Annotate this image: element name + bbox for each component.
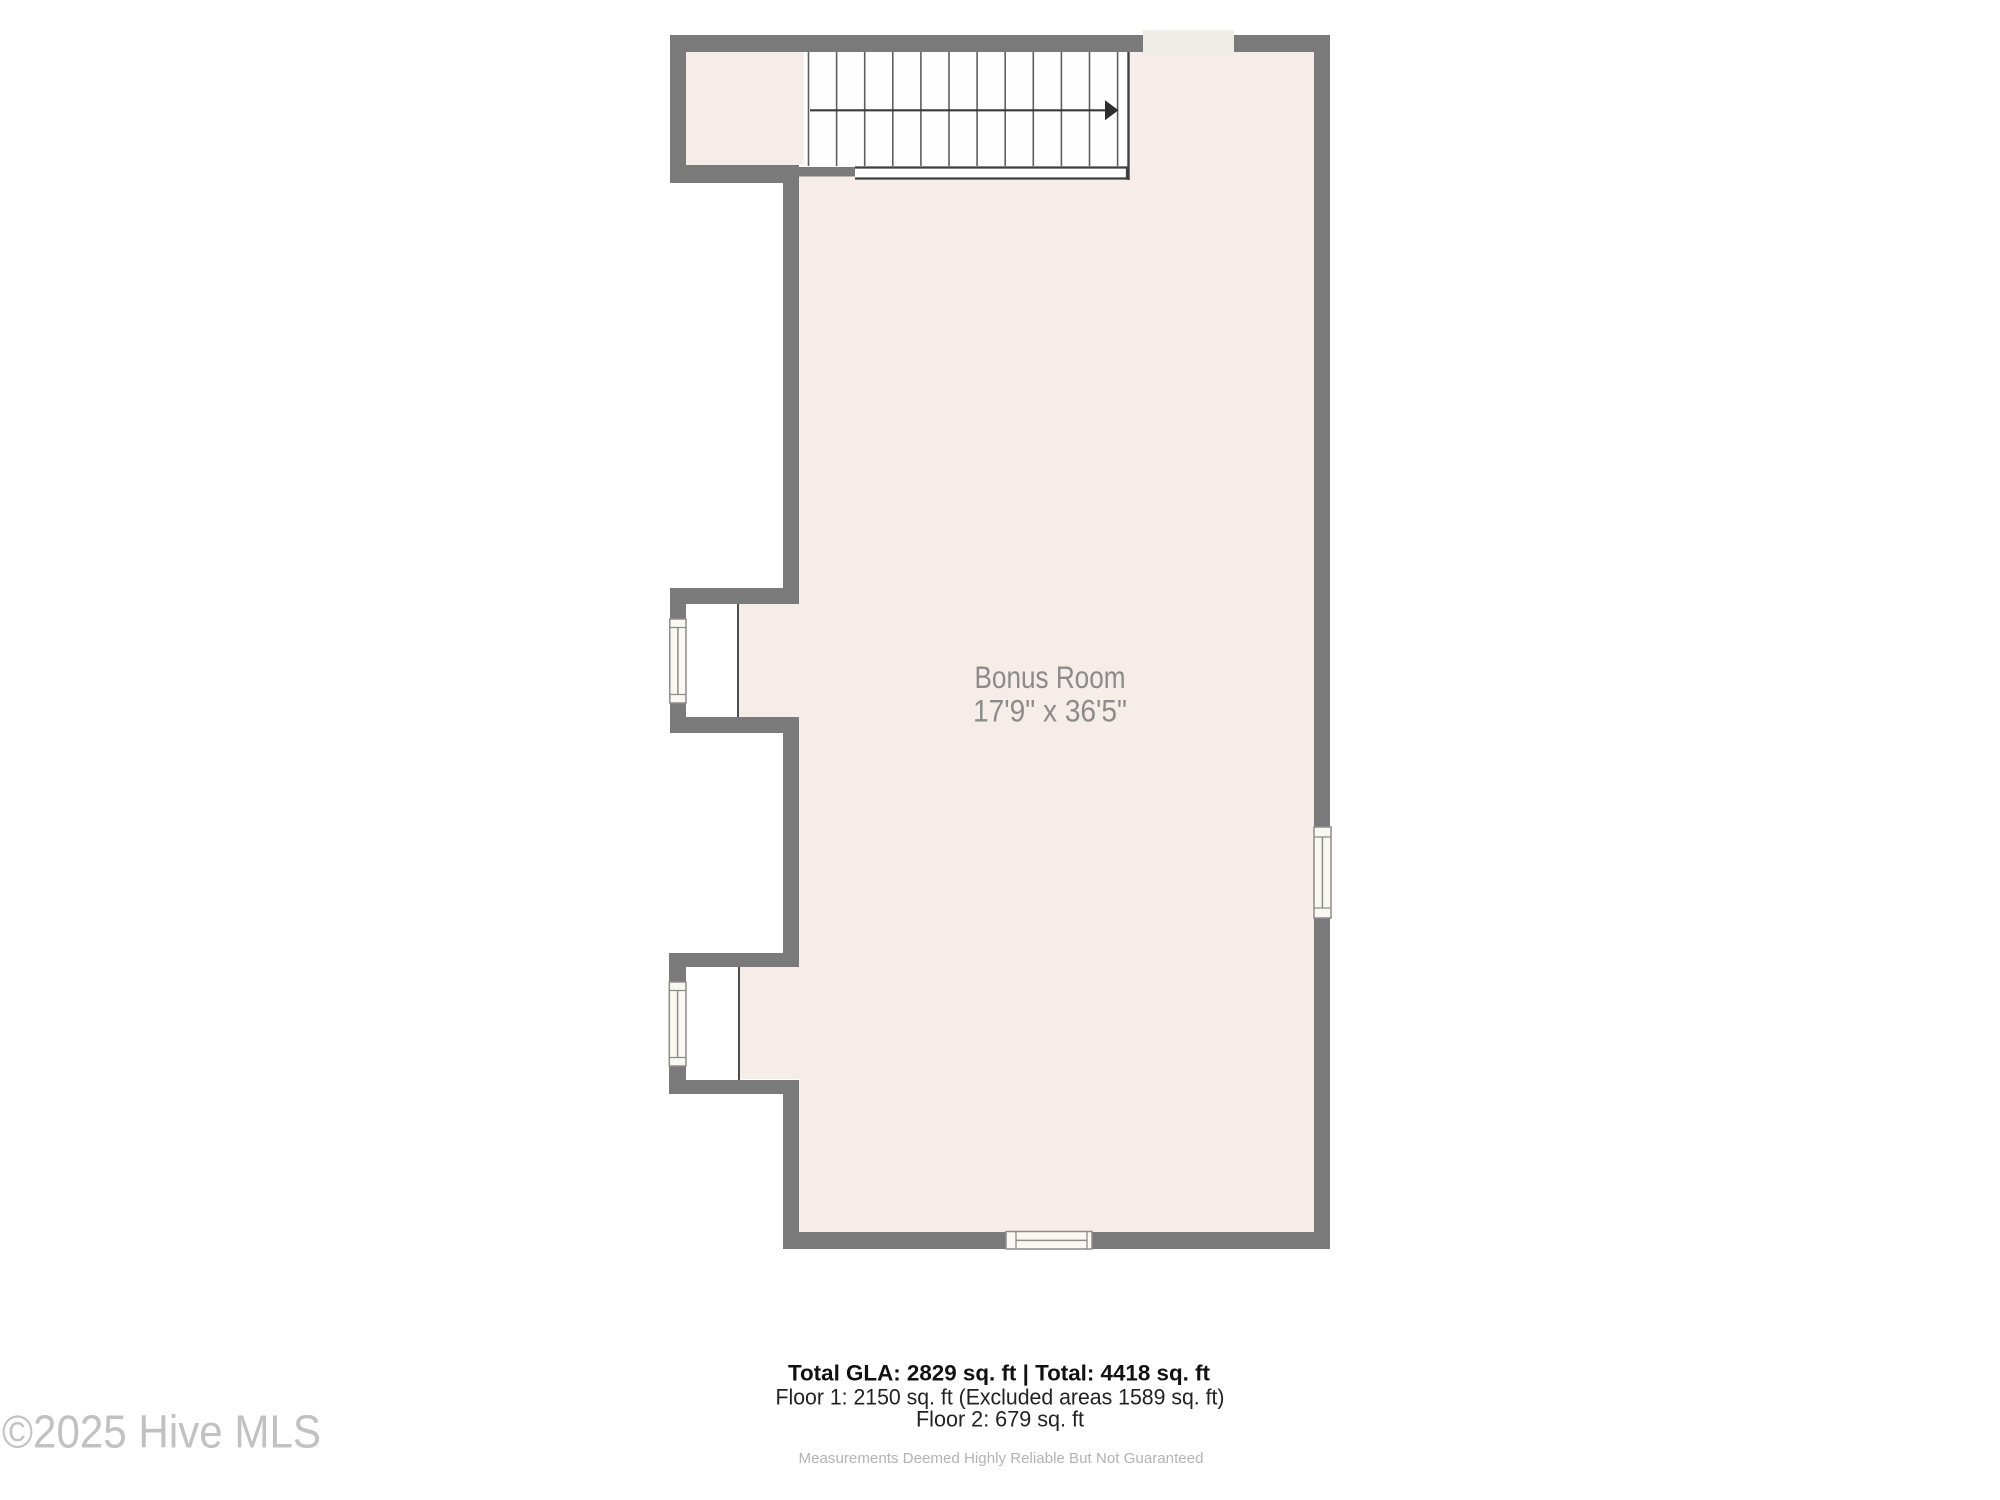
svg-text:17'9" x 36'5": 17'9" x 36'5" (973, 693, 1127, 729)
svg-text:Floor 2: 679 sq. ft: Floor 2: 679 sq. ft (916, 1407, 1084, 1432)
svg-text:©2025 Hive MLS: ©2025 Hive MLS (2, 1406, 321, 1458)
svg-text:Measurements Deemed Highly Rel: Measurements Deemed Highly Reliable But … (799, 1450, 1204, 1467)
svg-text:Total GLA: 2829 sq. ft | Total: Total GLA: 2829 sq. ft | Total: 4418 sq.… (788, 1361, 1211, 1386)
svg-text:Bonus Room: Bonus Room (975, 659, 1126, 695)
